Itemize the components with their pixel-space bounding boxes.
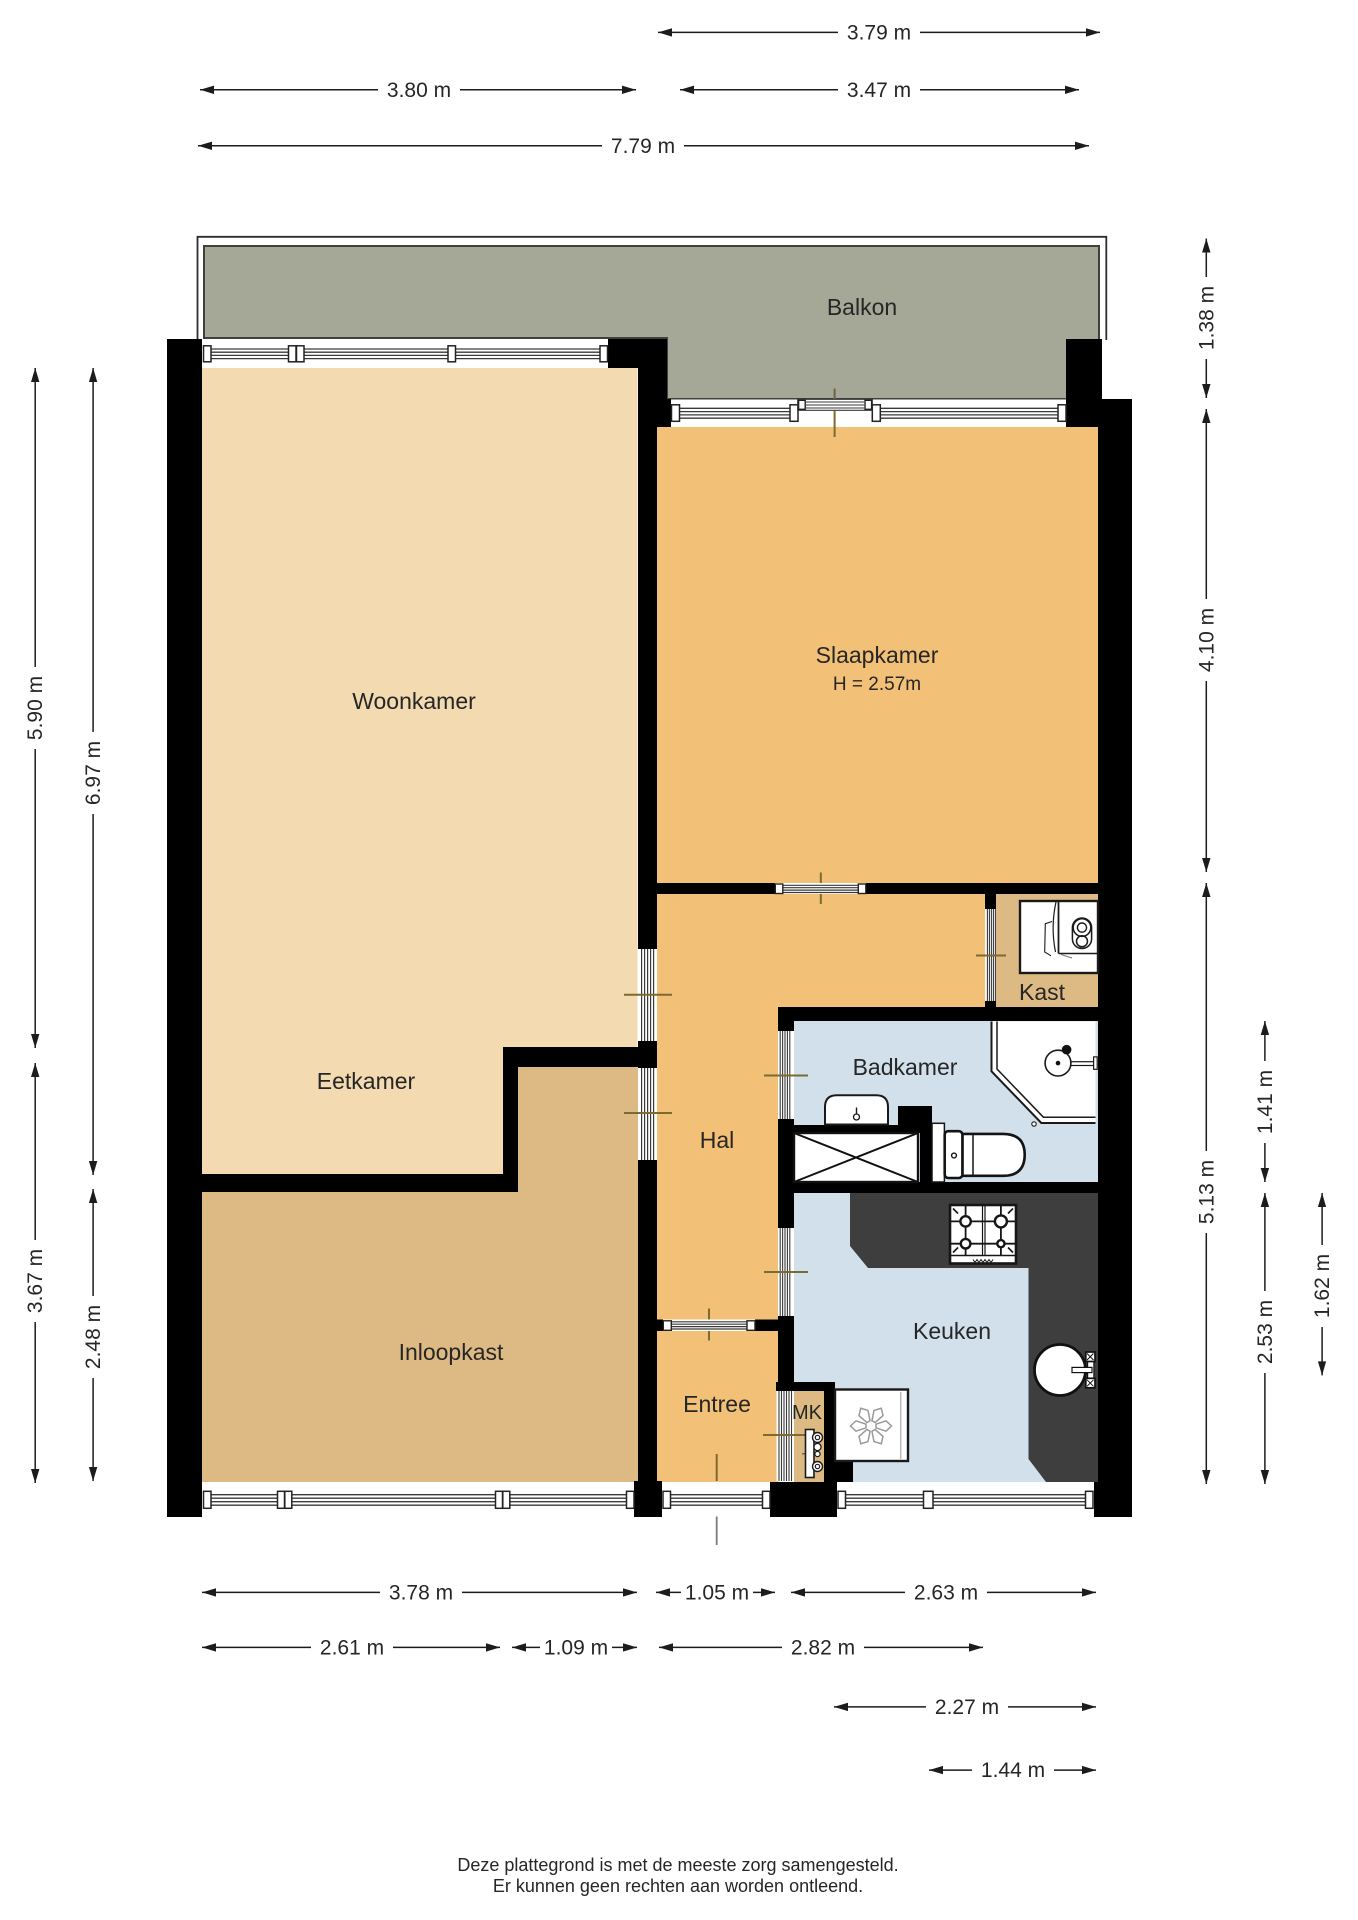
svg-text:1.09 m: 1.09 m bbox=[544, 1636, 608, 1659]
svg-text:3.78 m: 3.78 m bbox=[389, 1581, 453, 1604]
svg-text:Deze plattegrond is met de mee: Deze plattegrond is met de meeste zorg s… bbox=[457, 1855, 898, 1875]
svg-text:6.97 m: 6.97 m bbox=[82, 741, 105, 805]
svg-text:Badkamer: Badkamer bbox=[853, 1054, 958, 1080]
svg-text:H = 2.57m: H = 2.57m bbox=[833, 674, 921, 695]
svg-text:2.82 m: 2.82 m bbox=[791, 1636, 855, 1659]
svg-text:1.05 m: 1.05 m bbox=[685, 1581, 749, 1604]
svg-text:2.53 m: 2.53 m bbox=[1254, 1300, 1277, 1364]
svg-text:Inloopkast: Inloopkast bbox=[399, 1339, 504, 1365]
svg-text:Woonkamer: Woonkamer bbox=[352, 688, 476, 714]
svg-text:3.67 m: 3.67 m bbox=[24, 1249, 47, 1313]
svg-text:1.44 m: 1.44 m bbox=[981, 1759, 1045, 1782]
svg-text:Er kunnen geen rechten aan wor: Er kunnen geen rechten aan worden ontlee… bbox=[493, 1876, 863, 1896]
svg-text:1.41 m: 1.41 m bbox=[1254, 1070, 1277, 1134]
svg-text:Balkon: Balkon bbox=[827, 294, 897, 320]
svg-text:Eetkamer: Eetkamer bbox=[317, 1068, 416, 1094]
svg-text:4.10 m: 4.10 m bbox=[1195, 608, 1218, 672]
svg-text:3.80 m: 3.80 m bbox=[387, 79, 451, 102]
svg-text:2.63 m: 2.63 m bbox=[914, 1581, 978, 1604]
svg-text:7.79 m: 7.79 m bbox=[611, 135, 675, 158]
svg-text:Hal: Hal bbox=[700, 1127, 735, 1153]
svg-text:MK: MK bbox=[792, 1402, 823, 1424]
svg-text:Keuken: Keuken bbox=[913, 1318, 991, 1344]
svg-text:Slaapkamer: Slaapkamer bbox=[816, 642, 939, 668]
svg-text:Kast: Kast bbox=[1019, 979, 1066, 1005]
svg-text:5.90 m: 5.90 m bbox=[24, 676, 47, 740]
svg-text:2.27 m: 2.27 m bbox=[935, 1696, 999, 1719]
svg-text:3.79 m: 3.79 m bbox=[847, 21, 911, 44]
svg-text:1.38 m: 1.38 m bbox=[1195, 286, 1218, 350]
svg-text:2.61 m: 2.61 m bbox=[320, 1636, 384, 1659]
svg-text:5.13 m: 5.13 m bbox=[1195, 1160, 1218, 1224]
svg-text:3.47 m: 3.47 m bbox=[847, 79, 911, 102]
svg-text:Entree: Entree bbox=[683, 1391, 751, 1417]
svg-text:1.62 m: 1.62 m bbox=[1311, 1254, 1334, 1318]
svg-text:2.48 m: 2.48 m bbox=[82, 1305, 105, 1369]
